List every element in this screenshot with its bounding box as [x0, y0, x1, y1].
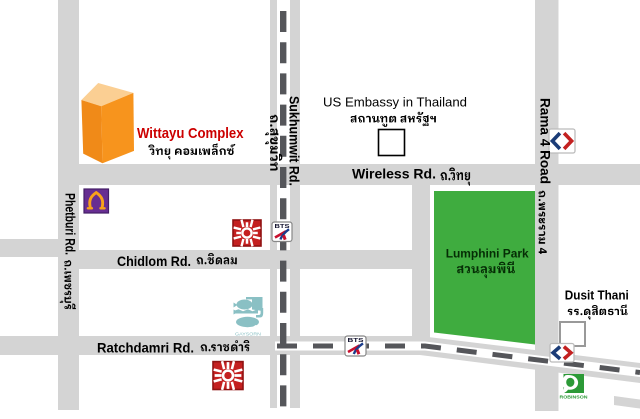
- svg-text:Sukhumwit Rd.: Sukhumwit Rd.: [287, 96, 302, 186]
- svg-text:US Embassy in Thailand: US Embassy in Thailand: [323, 94, 467, 109]
- svg-text:Chidlom Rd.: Chidlom Rd.: [117, 254, 191, 269]
- svg-text:Wireless Rd.: Wireless Rd.: [352, 167, 436, 182]
- svg-text:Phetburi Rd.: Phetburi Rd.: [63, 193, 78, 255]
- svg-text:ROBINSON: ROBINSON: [560, 395, 589, 400]
- svg-text:Lumphini Park: Lumphini Park: [446, 246, 529, 260]
- svg-text:Ratchdamri Rd.: Ratchdamri Rd.: [97, 340, 194, 355]
- svg-text:Rama 4 Road: Rama 4 Road: [538, 98, 553, 184]
- svg-text:Wittayu Complex: Wittayu Complex: [137, 125, 244, 142]
- svg-text:GAYSORN: GAYSORN: [235, 332, 261, 337]
- svg-text:Dusit Thani: Dusit Thani: [565, 288, 629, 303]
